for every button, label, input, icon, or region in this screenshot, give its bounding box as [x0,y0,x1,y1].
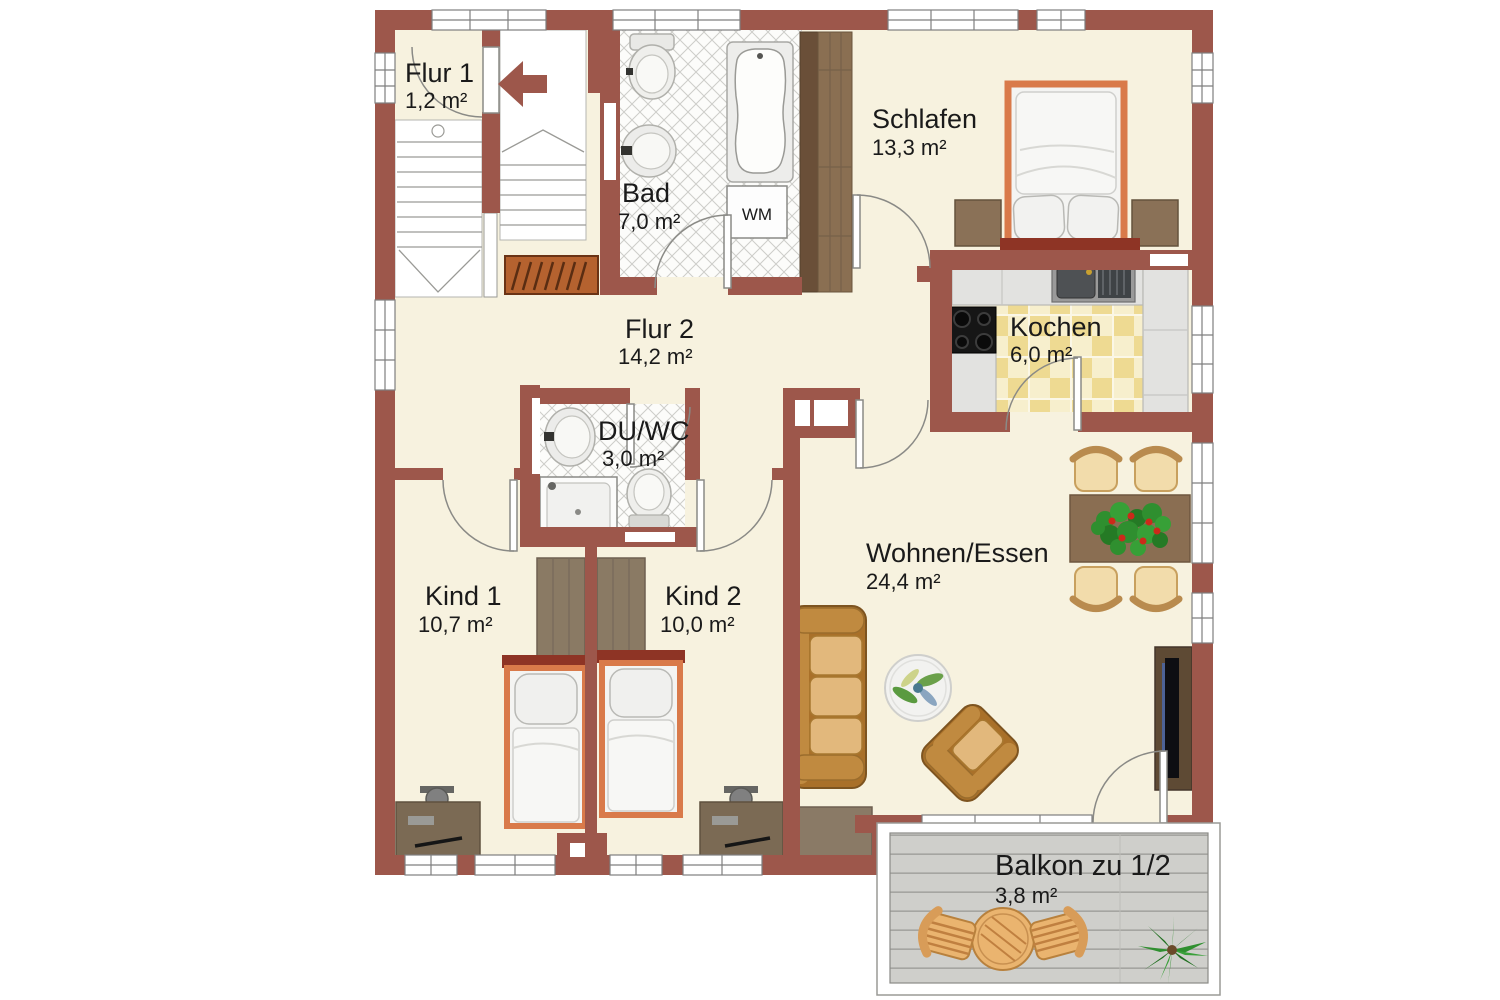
coffee-table-icon [885,655,951,721]
window-right-schlafen [1192,53,1213,103]
dining-chair [1073,450,1119,492]
balcony-door-leaf [1160,751,1167,823]
bad-door-leaf [724,215,731,288]
label-wohnen-name: Wohnen/Essen [866,538,1049,568]
label-duwc-area: 3,0 m² [602,446,664,471]
label-flur1-name: Flur 1 [405,58,474,88]
window-bottom-kind1-a [405,855,457,875]
dining-chair [1133,450,1179,492]
label-kind1-area: 10,7 m² [418,612,493,637]
window-top-bad [613,10,740,30]
wardrobe [597,558,645,657]
wardrobe [537,558,585,657]
sink-icon [621,125,676,177]
label-flur2-area: 14,2 m² [618,344,693,369]
stair-railing [484,213,497,297]
toilet-icon [627,469,671,528]
entry-door-leaf [483,47,499,113]
schlafen-door-leaf [853,195,860,268]
bathtub-icon [727,42,793,182]
nightstand [955,200,1001,246]
window-left-flur1 [375,53,395,103]
kind1-door-leaf [510,480,517,551]
window-bottom-kind2-a [610,855,662,875]
washing-machine-label: WM [742,205,772,224]
label-kochen-area: 6,0 m² [1010,342,1072,367]
window-top-schlafen [888,10,1018,30]
sofa-icon [790,606,866,788]
label-balkon-area: 3,8 m² [995,883,1057,908]
label-kochen-name: Kochen [1010,312,1102,342]
room-bad-floor: WM [620,30,802,277]
label-balkon-name: Balkon zu 1/2 [995,850,1171,882]
label-kind1-name: Kind 1 [425,581,502,611]
window-bottom-kind1-b [475,855,555,875]
dining-chair [1073,567,1119,609]
label-schlafen-area: 13,3 m² [872,135,947,160]
wardrobe-tall [800,32,852,292]
dining-chair [1133,567,1179,609]
window-right-wohnen [1192,593,1213,643]
label-kind2-name: Kind 2 [665,581,742,611]
window-right-kochen [1192,306,1213,393]
bed-footboard [1000,238,1140,252]
single-bed-icon [502,655,590,826]
floor-plan-page: WM [0,0,1500,1000]
kitchen-counter-right [1143,262,1188,427]
label-bad-name: Bad [622,178,670,208]
stove-icon [950,307,996,353]
single-bed-icon [597,650,685,815]
label-bad-area: 7,0 m² [618,209,680,234]
washing-machine: WM [727,186,787,238]
window-left-kind1 [375,300,395,390]
label-schlafen-name: Schlafen [872,104,977,134]
wohnen-door-leaf [856,400,863,468]
double-bed-icon [1000,84,1140,252]
kochen-door-leaf [1074,357,1081,430]
window-bottom-kind2-b [683,855,762,875]
label-flur2-name: Flur 2 [625,314,694,344]
label-kind2-area: 10,0 m² [660,612,735,637]
floor-plan: WM [0,0,1500,1000]
kind2-door-leaf [697,480,704,551]
label-flur1-area: 1,2 m² [405,88,467,113]
label-duwc-name: DU/WC [598,416,689,446]
label-wohnen-area: 24,4 m² [866,569,941,594]
window-top-stairs [432,10,546,30]
balcony [877,823,1220,995]
window-right-essen [1192,443,1213,563]
balcony-table-icon [972,908,1034,970]
sink-icon [544,408,595,466]
doormat [505,256,598,294]
window-top-schlafen-2 [1037,10,1085,30]
